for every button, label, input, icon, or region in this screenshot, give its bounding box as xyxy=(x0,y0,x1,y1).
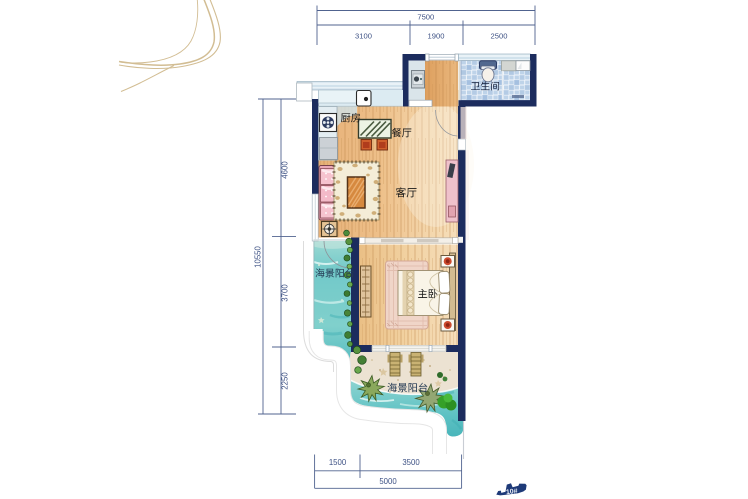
svg-text:2500: 2500 xyxy=(491,31,508,40)
svg-text:3700: 3700 xyxy=(281,284,290,302)
svg-text:10550: 10550 xyxy=(254,245,263,267)
svg-text:4600: 4600 xyxy=(281,161,290,179)
svg-text:3100: 3100 xyxy=(355,31,372,40)
svg-text:1500: 1500 xyxy=(329,458,347,467)
svg-text:5000: 5000 xyxy=(379,477,397,486)
svg-text:3500: 3500 xyxy=(402,458,420,467)
svg-text:10#: 10# xyxy=(506,488,518,496)
svg-text:1900: 1900 xyxy=(428,31,445,40)
svg-text:7500: 7500 xyxy=(417,12,434,21)
svg-text:2250: 2250 xyxy=(281,372,290,390)
